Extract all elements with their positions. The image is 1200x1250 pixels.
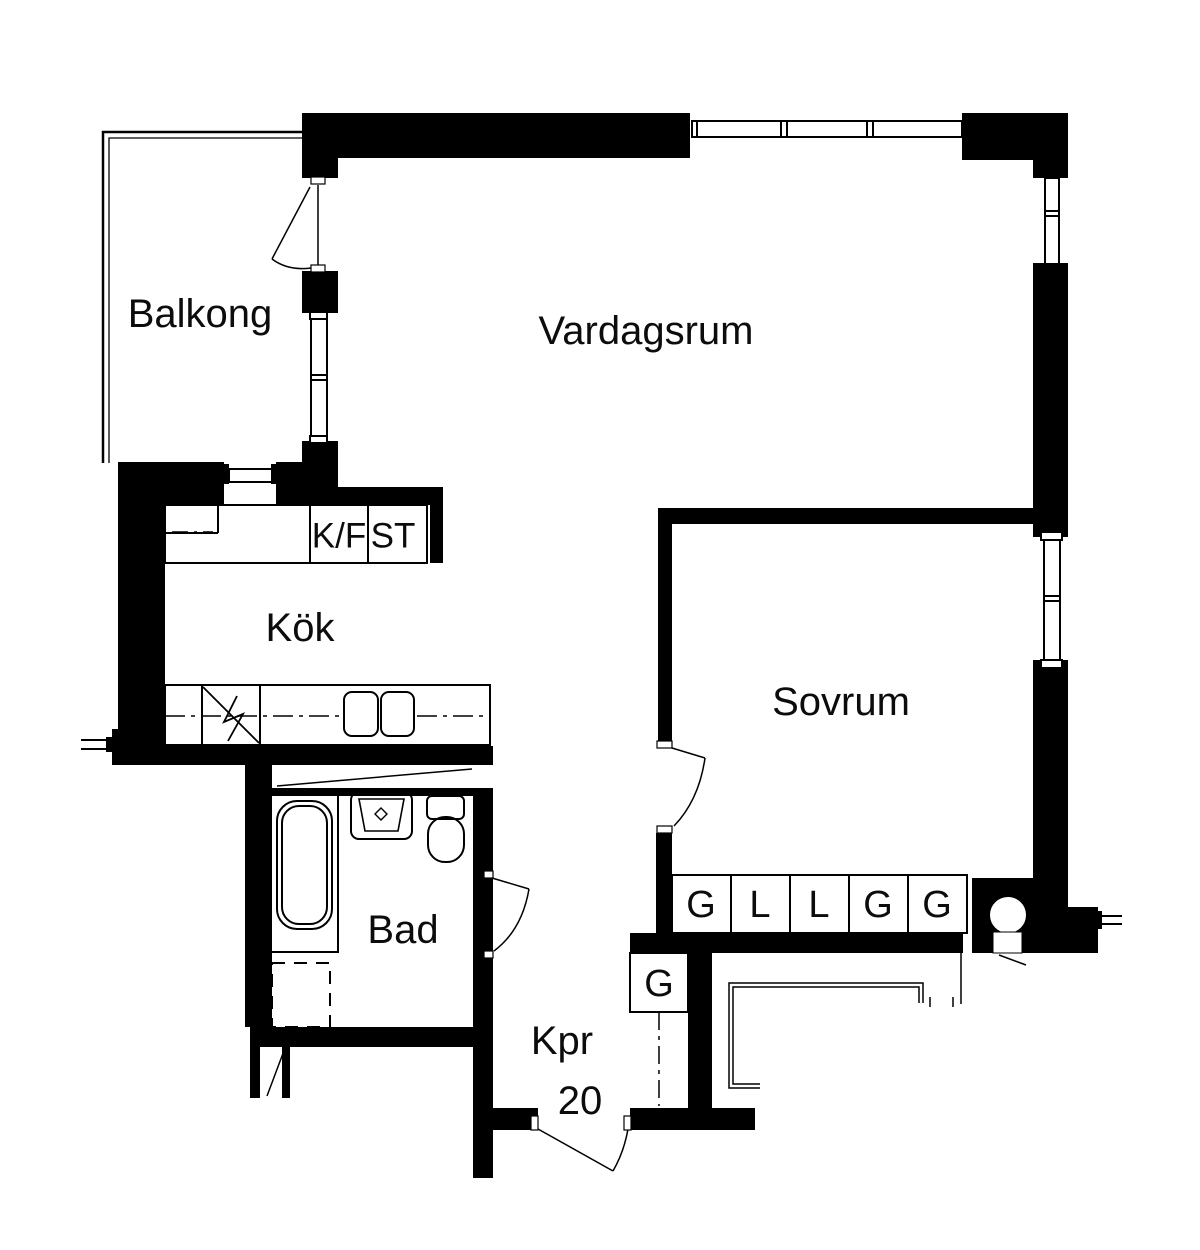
kitchen-window — [224, 464, 276, 484]
toilet-icon — [427, 796, 464, 862]
balcony-door — [272, 177, 325, 272]
kitchen-counter — [165, 685, 490, 745]
wardrobe-label-2: L — [749, 886, 770, 924]
wall-tie-right — [1096, 911, 1122, 929]
stove-icon — [344, 692, 414, 736]
exterior-walls — [112, 113, 1098, 1178]
entry-area-number: 20 — [558, 1081, 603, 1121]
cabinet-label-st: ST — [371, 519, 416, 554]
hall-cabinet-label: G — [644, 965, 674, 1003]
living-room-top-window — [692, 121, 962, 137]
bedroom-window — [1041, 532, 1062, 668]
room-label-sovrum: Sovrum — [772, 682, 910, 722]
floor-plan-drawing — [0, 0, 1200, 1250]
room-label-vardagsrum: Vardagsrum — [539, 311, 754, 351]
wardrobe-label-5: G — [922, 886, 952, 924]
wall-tie-left — [81, 737, 112, 752]
cabinet-label-kf: K/F — [312, 519, 366, 554]
sink-icon — [351, 792, 412, 839]
stairwell-outline — [729, 953, 961, 1088]
wardrobe-label-1: G — [686, 886, 716, 924]
room-label-kok: Kök — [266, 608, 335, 648]
balcony-window — [310, 312, 327, 443]
wardrobe-label-3: L — [808, 886, 829, 924]
room-label-balkong: Balkong — [128, 294, 273, 334]
living-room-right-window — [1045, 178, 1059, 264]
dishwasher-icon — [203, 687, 259, 743]
bedroom-door — [657, 741, 705, 833]
bathtub-icon — [271, 795, 338, 952]
wardrobe-label-4: G — [863, 886, 893, 924]
bathroom-sliding-door-line — [277, 769, 472, 786]
room-label-kpr: Kpr — [531, 1021, 593, 1061]
room-label-bad: Bad — [367, 910, 438, 950]
washer-space-dashed — [272, 963, 330, 1027]
entry-door — [531, 1116, 631, 1171]
floor-plan: Balkong Vardagsrum Kök Sovrum Bad Kpr 20… — [0, 0, 1200, 1250]
